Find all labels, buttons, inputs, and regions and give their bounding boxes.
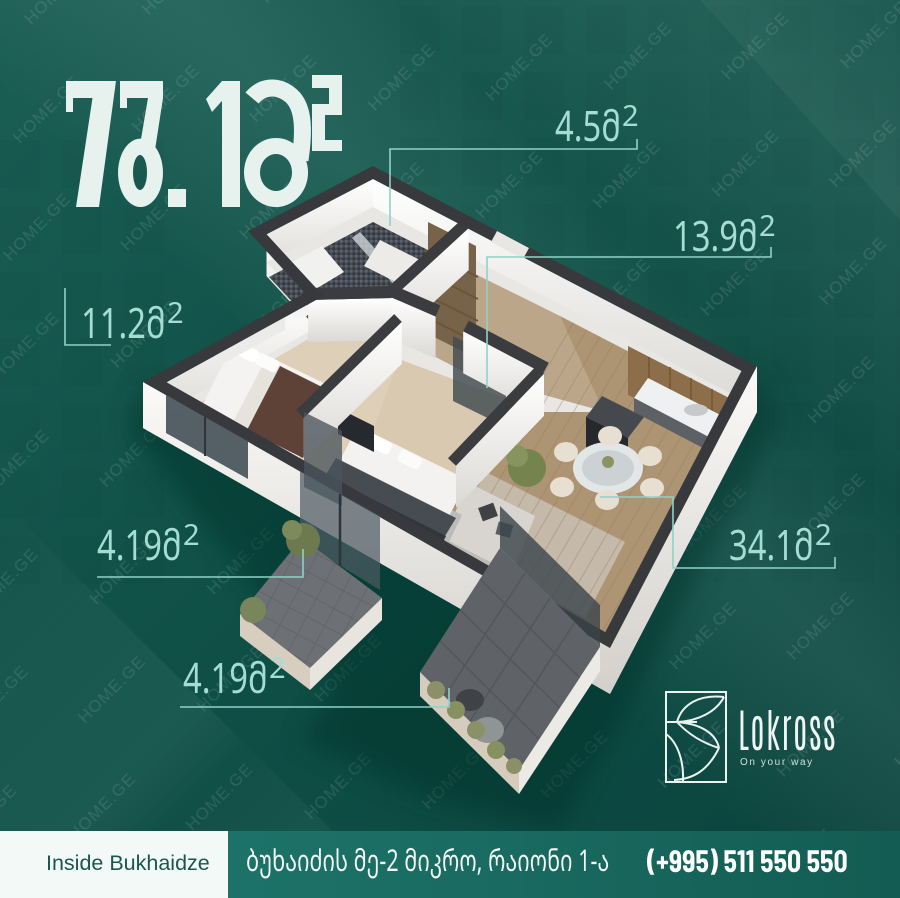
svg-text:On your way: On your way xyxy=(740,757,814,768)
svg-text:Inside Bukhaidze: Inside Bukhaidze xyxy=(46,851,210,875)
